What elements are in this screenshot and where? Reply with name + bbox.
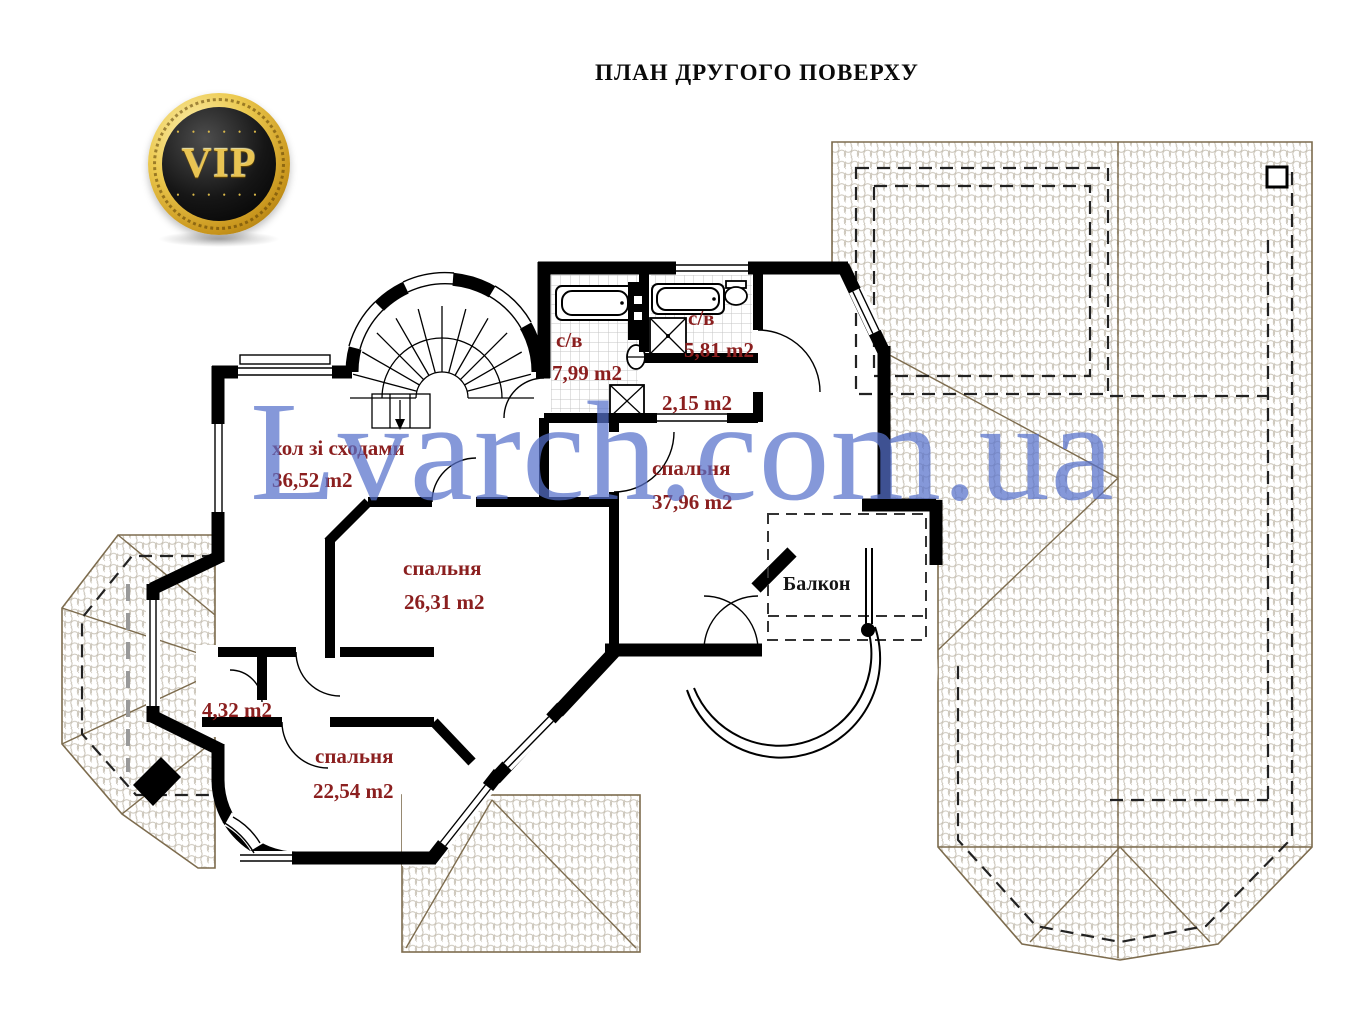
watermark: Lvarch.com.ua	[250, 380, 1115, 522]
vip-dots-bottom: • • • • • •	[176, 191, 261, 200]
room-label-bathroom-right-area: 5,81 m2	[684, 340, 754, 361]
room-label-wardrobe-area: 4,32 m2	[202, 700, 272, 721]
room-label-bedroom-bottom-name: спальня	[315, 746, 393, 767]
vip-logo: • • • • • • VIP • • • • • •	[148, 93, 290, 235]
room-label-bedroom-center-name: спальня	[403, 558, 481, 579]
vip-dots-top: • • • • • •	[176, 128, 261, 137]
room-label-bedroom-center-area: 26,31 m2	[404, 592, 485, 613]
vip-logo-text: VIP	[181, 143, 256, 185]
room-label-bathroom-right-name: с/в	[688, 308, 715, 329]
room-label-balcony: Балкон	[783, 574, 850, 594]
page-title: ПЛАН ДРУГОГО ПОВЕРХУ	[595, 60, 919, 86]
room-label-bathroom-left-name: с/в	[556, 330, 583, 351]
vip-logo-center: • • • • • • VIP • • • • • •	[162, 107, 276, 221]
room-label-bedroom-bottom-area: 22,54 m2	[313, 781, 394, 802]
floor-plan-page: ПЛАН ДРУГОГО ПОВЕРХУ • • • • • • VIP • •…	[0, 0, 1372, 1026]
